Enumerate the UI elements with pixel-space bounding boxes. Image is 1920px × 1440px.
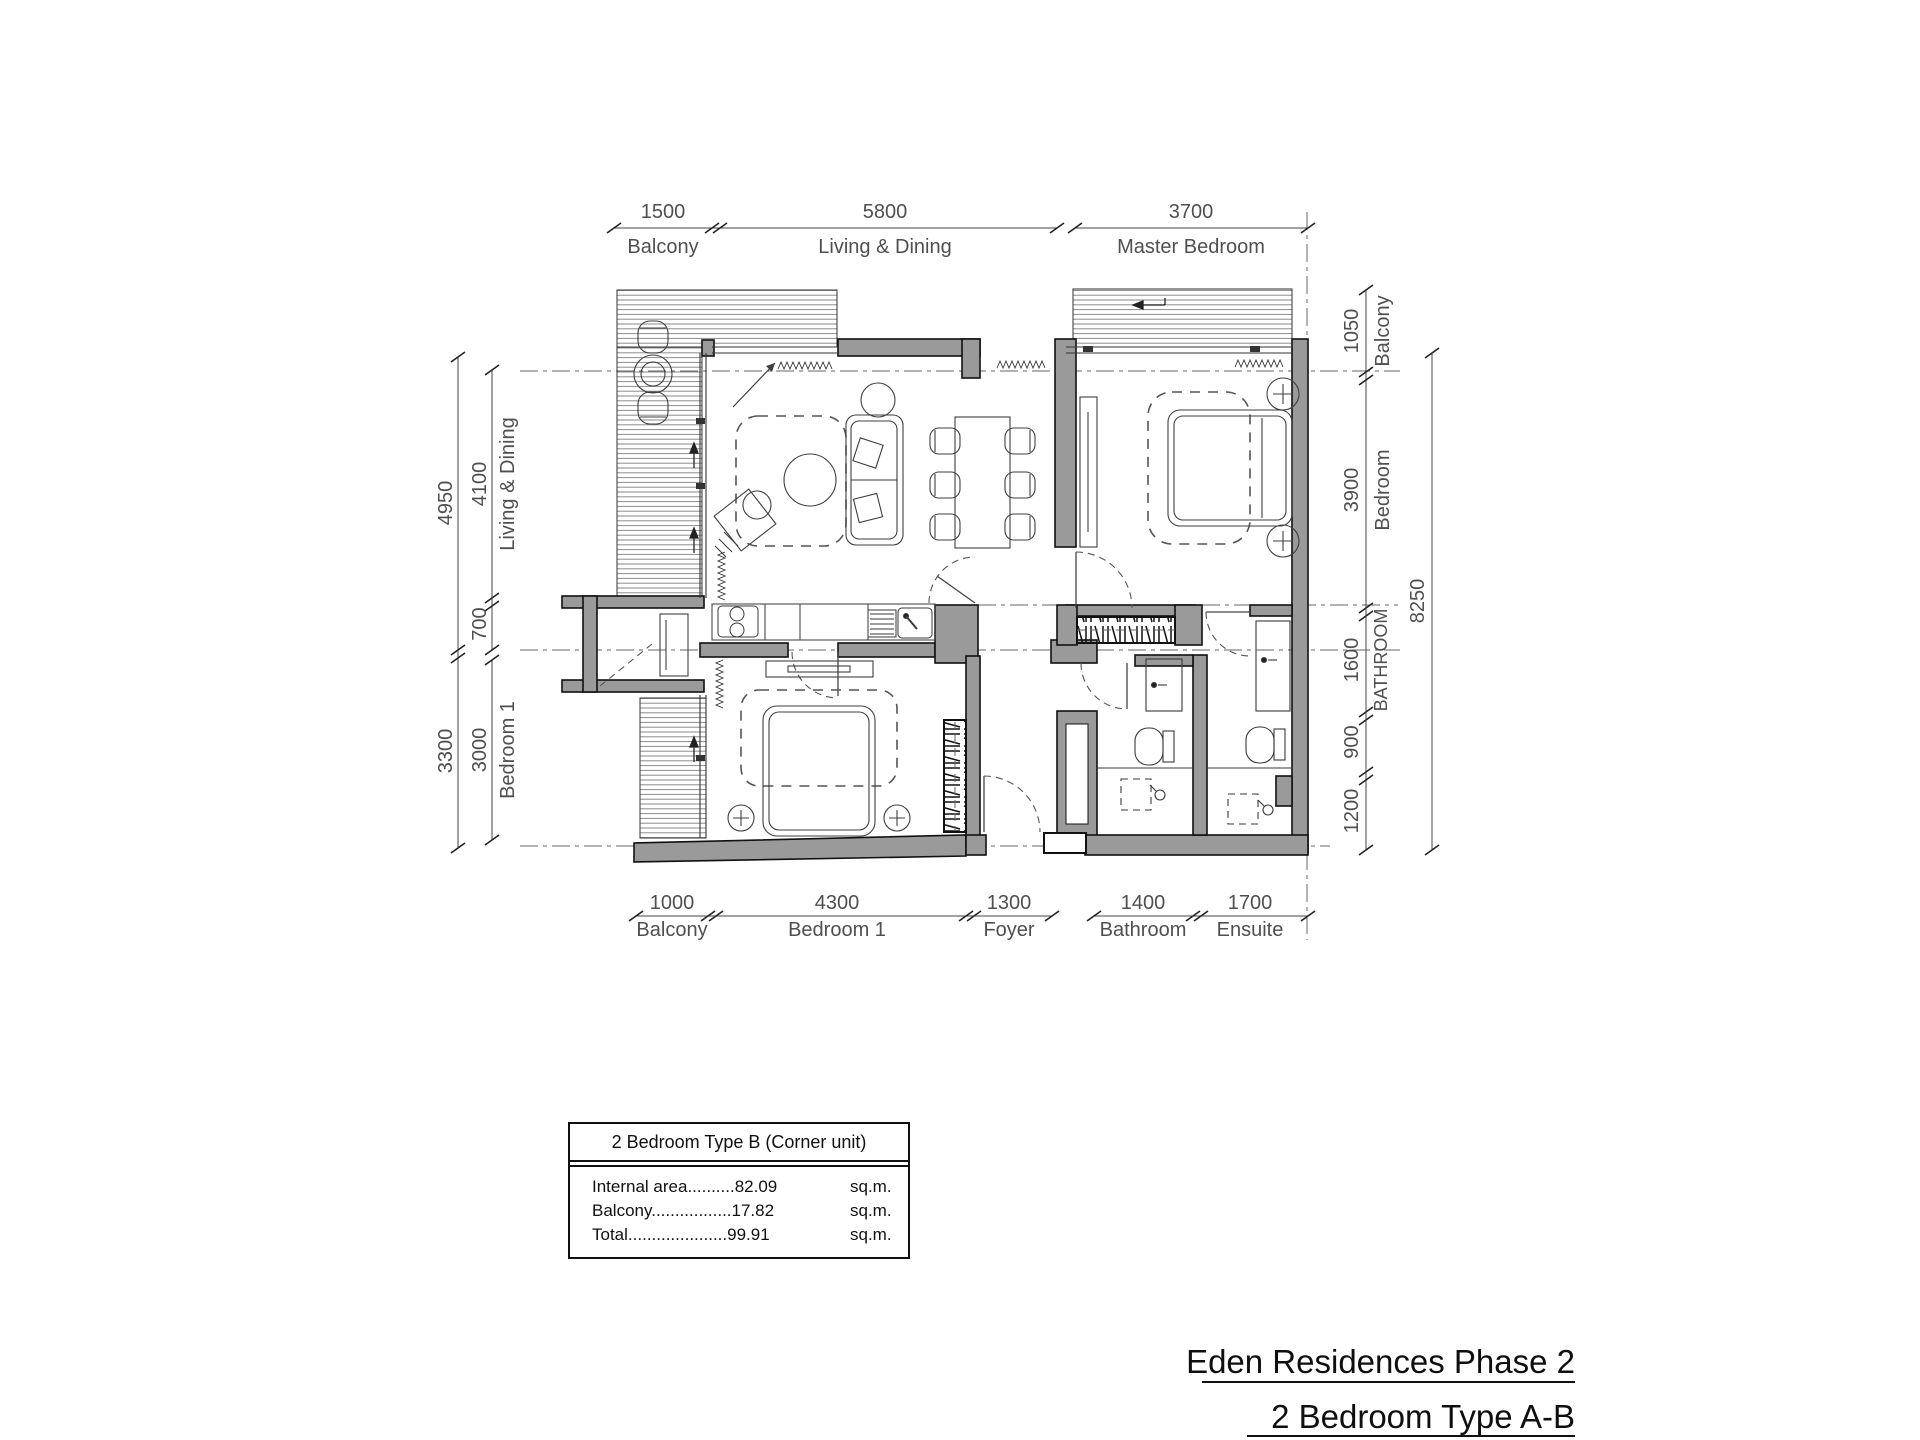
door-ensuite-swing: [1206, 612, 1250, 656]
balcony-top-left-band: [617, 290, 837, 347]
dim-right-8250: 8250: [1408, 579, 1428, 624]
master-bed: [1168, 410, 1292, 526]
entry-threshold: [1044, 833, 1086, 853]
bedroom1-nightstands: [728, 805, 910, 831]
window-living-north: [712, 347, 838, 353]
tv-console: [1080, 397, 1097, 547]
dining-set: [930, 417, 1035, 548]
floorplan-page: 1500 Balcony 5800 Living & Dining 3700 M…: [0, 0, 1920, 1440]
unit-type-title: 2 Bedroom Type A-B: [1000, 1398, 1575, 1436]
unit-info-header: 2 Bedroom Type B (Corner unit): [570, 1124, 908, 1162]
balcony-bedroom1: [640, 698, 706, 838]
ac-unit: [660, 614, 688, 676]
info-leader: .................: [651, 1201, 731, 1220]
dim-bottom-ensuite-label: Ensuite: [1217, 920, 1284, 940]
balcony-left-strip: [617, 347, 702, 603]
info-unit: sq.m.: [850, 1199, 892, 1223]
dim-right-1050: 1050: [1342, 309, 1362, 354]
dim-right-1200: 1200: [1342, 789, 1362, 834]
dim-left-living-label: Living & Dining: [498, 417, 518, 550]
info-unit: sq.m.: [850, 1223, 892, 1247]
dim-left-4950: 4950: [436, 481, 456, 526]
dim-bottom-bedroom1-value: 4300: [815, 893, 860, 913]
balcony-master: [1073, 289, 1292, 347]
side-table: [743, 491, 771, 519]
dresser: [766, 661, 873, 677]
bathroom-toilet: [1135, 728, 1174, 765]
dim-left-bedroom1-label: Bedroom 1: [498, 701, 518, 799]
bedroom1-bed: [763, 706, 875, 836]
dim-top-balcony-label: Balcony: [627, 237, 698, 257]
leader-line: [733, 363, 775, 407]
dim-right-900: 900: [1342, 725, 1362, 758]
info-row-balcony: Balcony.................17.82 sq.m.: [592, 1199, 886, 1223]
dim-top-balcony-value: 1500: [641, 202, 686, 222]
dim-right-balcony-label: Balcony: [1373, 295, 1393, 366]
dim-bottom-bathroom-label: Bathroom: [1100, 920, 1187, 940]
dim-bottom-balcony-label: Balcony: [636, 920, 707, 940]
bathroom-shower: [1121, 779, 1165, 810]
dim-left-700: 700: [470, 607, 490, 640]
project-title: Eden Residences Phase 2: [1000, 1343, 1575, 1381]
info-leader: .....................: [628, 1225, 727, 1244]
unit-info-body: Internal area..........82.09 sq.m. Balco…: [570, 1165, 908, 1257]
info-value: 99.91: [727, 1225, 770, 1244]
dim-bottom-ensuite-value: 1700: [1228, 893, 1273, 913]
sofa-end-table: [861, 383, 895, 417]
furniture-bedroom1: [728, 661, 910, 836]
cooktop: [718, 606, 758, 637]
door-bedroom1-swing: [792, 652, 838, 698]
kitchen-counter: [712, 604, 935, 640]
kitchen: [712, 604, 935, 640]
sliding-door-arrows: [690, 298, 1165, 762]
dim-left-3000: 3000: [470, 728, 490, 773]
ensuite-toilet: [1246, 727, 1285, 763]
info-value: 82.09: [735, 1177, 778, 1196]
dining-table: [955, 417, 1010, 548]
info-label: Internal area: [592, 1177, 687, 1196]
info-unit: sq.m.: [850, 1175, 892, 1199]
unit-info-box: 2 Bedroom Type B (Corner unit) Internal …: [568, 1122, 910, 1259]
info-label: Balcony: [592, 1201, 651, 1220]
ensuite-shower: [1228, 794, 1273, 824]
dim-left-3300: 3300: [436, 729, 456, 774]
floorplan-canvas: [0, 0, 1920, 1440]
dim-right-bedroom-label: Bedroom: [1373, 449, 1393, 530]
door-kitchen-leaf: [937, 576, 975, 603]
door-entry-swing: [984, 776, 1040, 832]
lounge-chair: [714, 489, 776, 557]
dim-right-bathroom-label: BATHROOM: [1372, 609, 1390, 712]
dim-top-master-value: 3700: [1169, 202, 1214, 222]
door-bathroom-swing: [1081, 663, 1127, 709]
dim-top-master-label: Master Bedroom: [1117, 237, 1265, 257]
info-value: 17.82: [732, 1201, 775, 1220]
dim-right-3900: 3900: [1342, 468, 1362, 513]
bedroom1-rug: [741, 690, 897, 786]
coffee-table: [784, 454, 836, 506]
door-master-swing: [1076, 552, 1132, 608]
info-label: Total: [592, 1225, 628, 1244]
title-rule-2: [1247, 1435, 1575, 1437]
dim-right-1600: 1600: [1342, 638, 1362, 683]
info-row-total: Total.....................99.91 sq.m.: [592, 1223, 886, 1247]
master-rug: [1148, 392, 1250, 544]
dim-bottom-foyer-label: Foyer: [983, 920, 1034, 940]
riser-shaft: [1066, 724, 1088, 824]
dim-top-living-label: Living & Dining: [818, 237, 951, 257]
living-rug: [736, 416, 846, 546]
info-leader: ..........: [687, 1177, 734, 1196]
sink: [868, 608, 932, 638]
dim-top-living-value: 5800: [863, 202, 908, 222]
dim-left-4100: 4100: [470, 462, 490, 507]
dim-bottom-bathroom-value: 1400: [1121, 893, 1166, 913]
furniture-master: [1080, 378, 1299, 557]
furniture-living: [714, 363, 1035, 557]
dim-bottom-foyer-value: 1300: [987, 893, 1032, 913]
door-kitchen-swing: [929, 557, 975, 603]
title-rule-1: [1202, 1381, 1575, 1383]
dim-bottom-bedroom1-label: Bedroom 1: [788, 920, 886, 940]
info-row-internal-area: Internal area..........82.09 sq.m.: [592, 1175, 886, 1199]
bathroom-fixtures: [1097, 659, 1193, 810]
dim-bottom-balcony-value: 1000: [650, 893, 695, 913]
ensuite-vanity: [1256, 621, 1290, 711]
sofa: [846, 415, 903, 545]
